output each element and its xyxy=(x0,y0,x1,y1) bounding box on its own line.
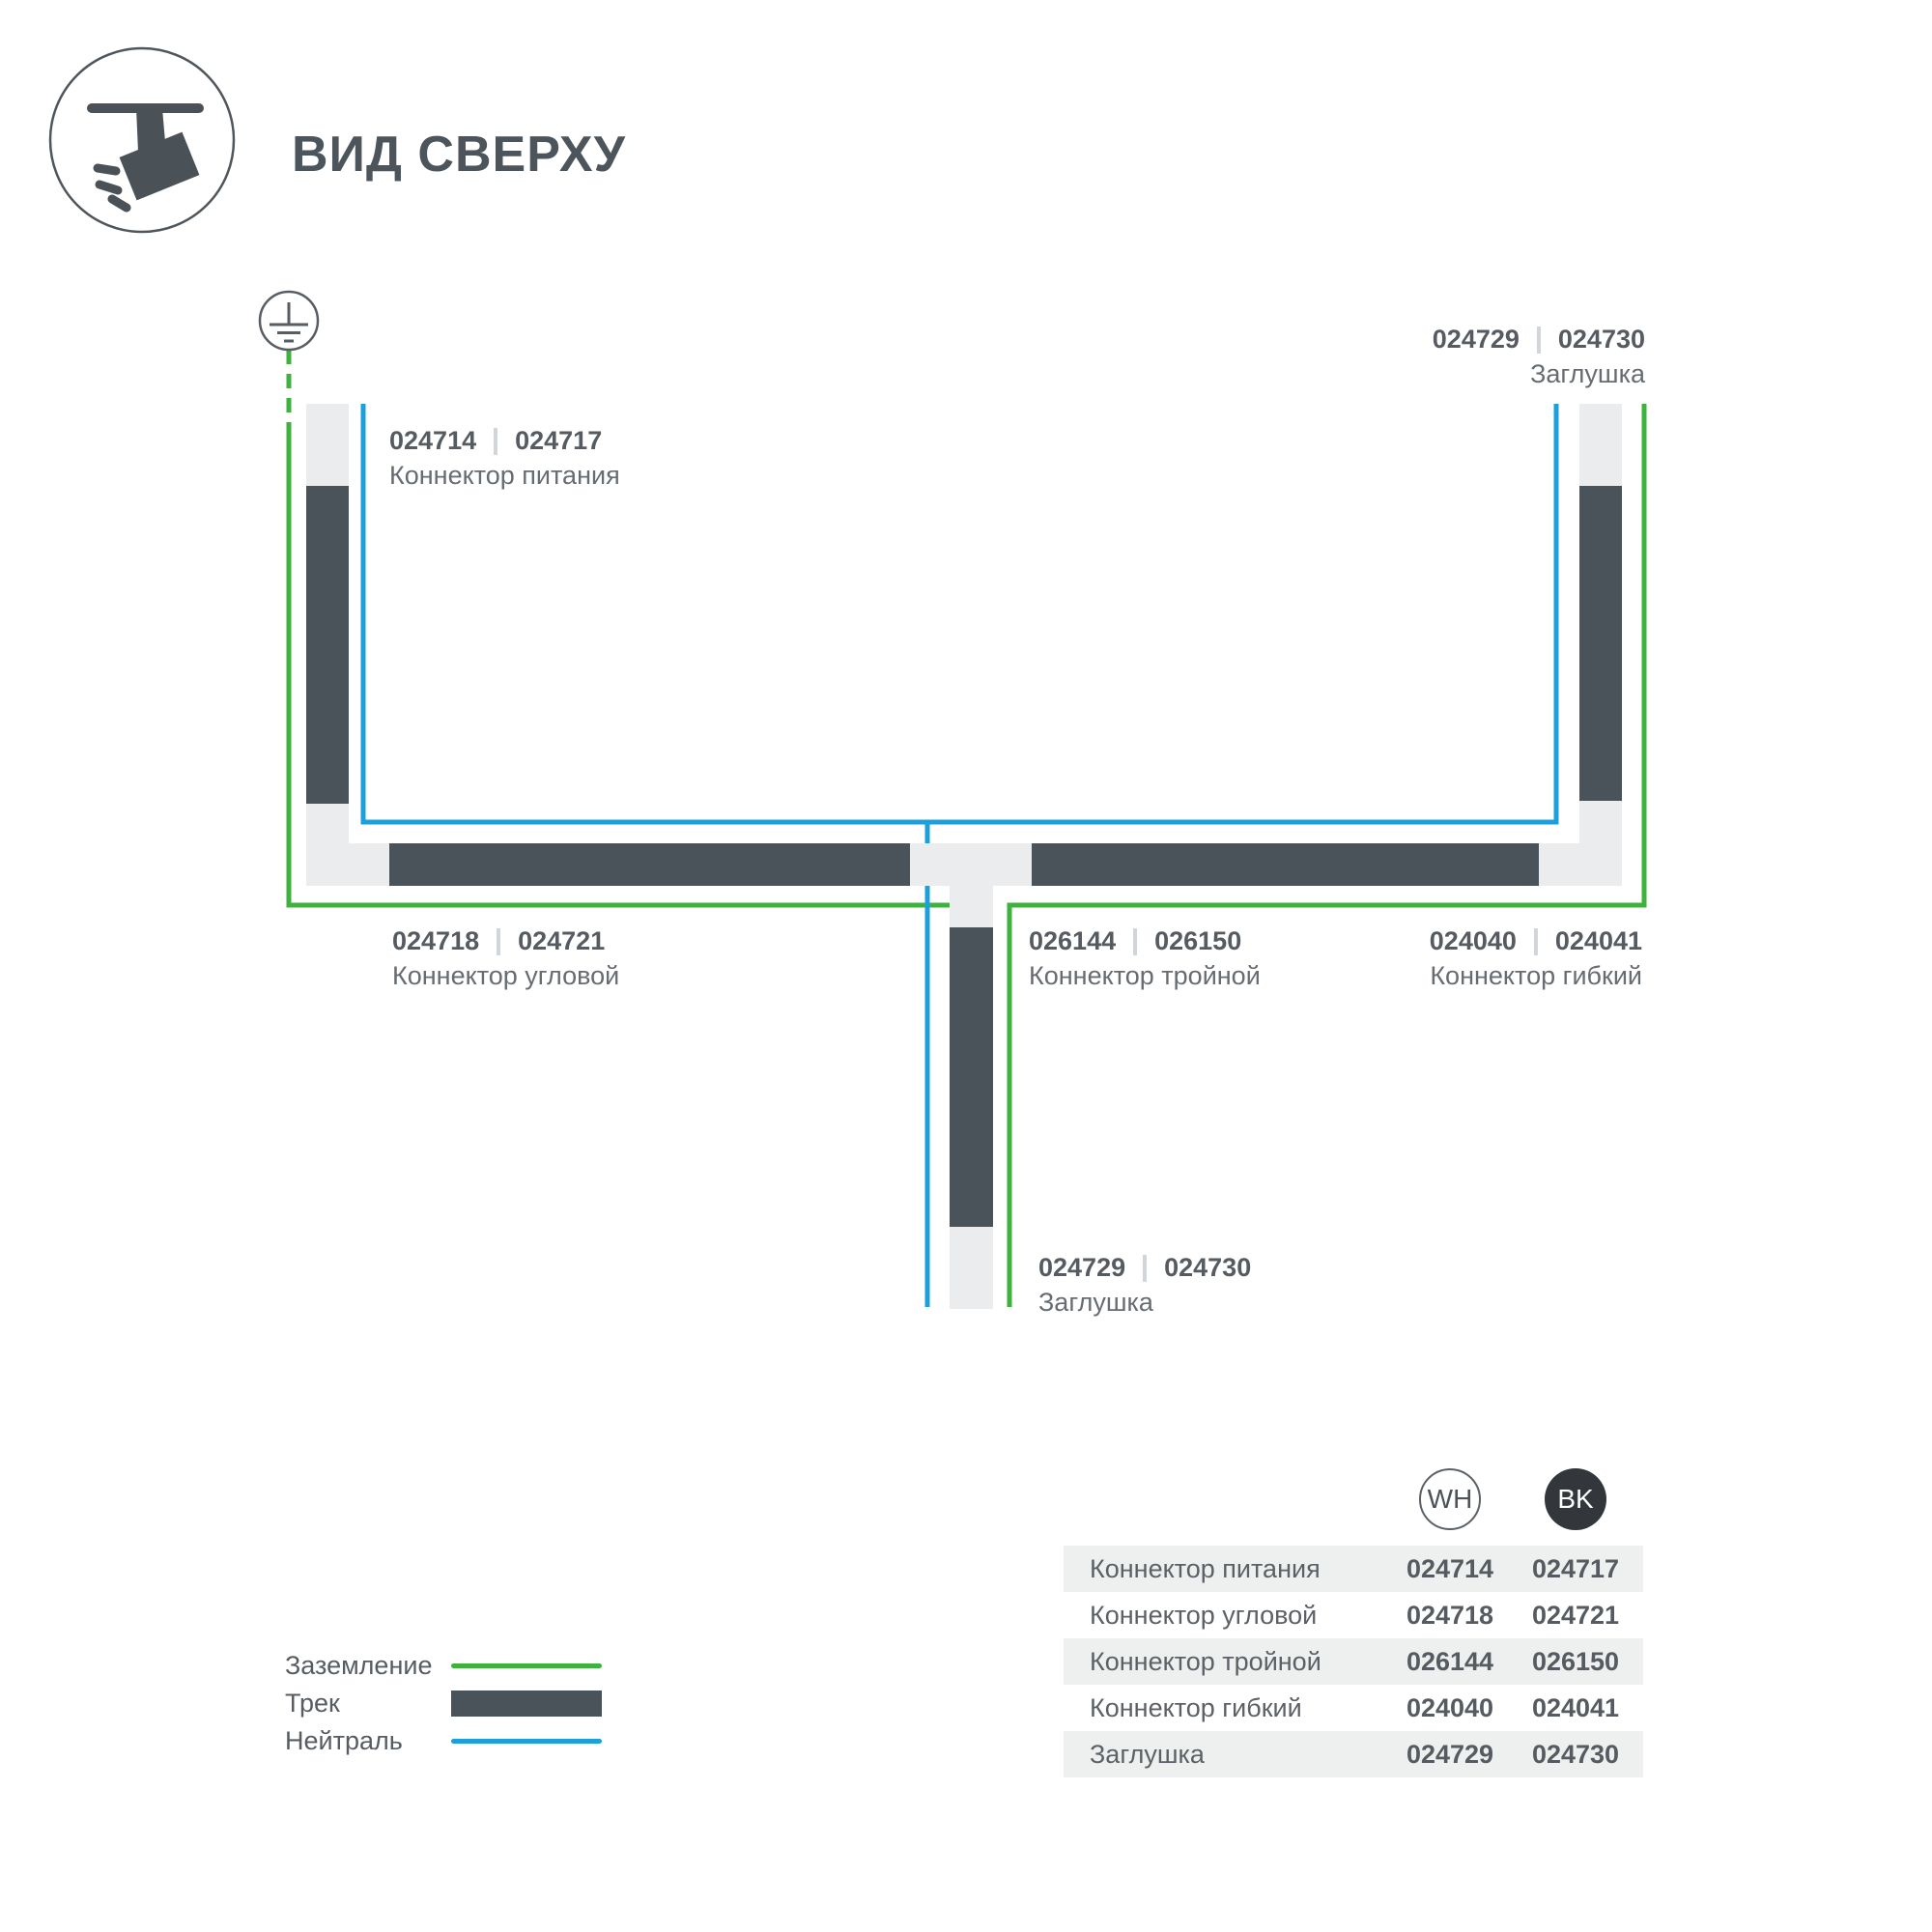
legend-label: Нейтраль xyxy=(285,1726,451,1756)
parts-table: Коннектор питания 024714 024717 Коннекто… xyxy=(1064,1546,1643,1777)
table-row: Заглушка 024729 024730 xyxy=(1064,1731,1643,1777)
row-bk-code: 024730 xyxy=(1513,1740,1638,1770)
label-corner-codes: 024718 024721 xyxy=(392,925,619,957)
code-bk: 024730 xyxy=(1164,1253,1251,1283)
legend-item-neutral: Нейтраль xyxy=(285,1722,602,1760)
table-row: Коннектор гибкий 024040 024041 xyxy=(1064,1685,1643,1731)
row-name: Коннектор питания xyxy=(1090,1554,1387,1584)
row-wh-code: 024718 xyxy=(1387,1601,1513,1631)
label-flexible-name: Коннектор гибкий xyxy=(1430,960,1642,992)
label-triple-codes: 026144 026150 xyxy=(1029,925,1261,957)
row-name: Коннектор угловой xyxy=(1090,1601,1387,1631)
label-corner-name: Коннектор угловой xyxy=(392,960,619,992)
code-divider xyxy=(497,928,500,955)
row-bk-code: 024717 xyxy=(1513,1554,1638,1584)
code-divider xyxy=(1143,1255,1147,1282)
row-wh-code: 026144 xyxy=(1387,1647,1513,1677)
row-bk-code: 026150 xyxy=(1513,1647,1638,1677)
code-wh: 024040 xyxy=(1430,926,1517,956)
code-wh: 024718 xyxy=(392,926,479,956)
label-corner-connector: 024718 024721 Коннектор угловой xyxy=(392,925,619,992)
label-endcap-top-codes: 024729 024730 xyxy=(1433,324,1645,355)
code-bk: 026150 xyxy=(1154,926,1241,956)
code-wh: 024714 xyxy=(389,426,476,456)
label-endcap-top: 024729 024730 Заглушка xyxy=(1433,324,1645,390)
column-badge-wh: WH xyxy=(1419,1468,1481,1530)
label-power-name: Коннектор питания xyxy=(389,460,620,492)
legend-item-track: Трек xyxy=(285,1685,602,1722)
label-flexible-codes: 024040 024041 xyxy=(1430,925,1642,957)
row-wh-code: 024714 xyxy=(1387,1554,1513,1584)
table-row: Коннектор тройной 026144 026150 xyxy=(1064,1638,1643,1685)
code-bk: 024717 xyxy=(515,426,602,456)
row-name: Коннектор тройной xyxy=(1090,1647,1387,1677)
code-wh: 026144 xyxy=(1029,926,1116,956)
row-wh-code: 024040 xyxy=(1387,1693,1513,1723)
code-bk: 024730 xyxy=(1558,325,1645,355)
label-triple-name: Коннектор тройной xyxy=(1029,960,1261,992)
label-endcap-top-name: Заглушка xyxy=(1433,358,1645,390)
track-bar-swatch xyxy=(451,1690,602,1717)
row-name: Коннектор гибкий xyxy=(1090,1693,1387,1723)
row-wh-code: 024729 xyxy=(1387,1740,1513,1770)
earth-ground-icon xyxy=(260,292,318,350)
row-name: Заглушка xyxy=(1090,1740,1387,1770)
code-divider xyxy=(1537,327,1541,354)
code-divider xyxy=(1534,928,1538,955)
ground-line-swatch xyxy=(451,1663,602,1668)
label-triple-connector: 026144 026150 Коннектор тройной xyxy=(1029,925,1261,992)
code-bk: 024041 xyxy=(1555,926,1642,956)
legend: Заземление Трек Нейтраль xyxy=(285,1647,602,1760)
label-endcap-bottom-codes: 024729 024730 xyxy=(1038,1252,1251,1284)
code-bk: 024721 xyxy=(518,926,605,956)
label-endcap-bottom-name: Заглушка xyxy=(1038,1287,1251,1319)
table-row: Коннектор питания 024714 024717 xyxy=(1064,1546,1643,1592)
neutral-line-swatch xyxy=(451,1739,602,1744)
column-badge-bk: BK xyxy=(1545,1468,1606,1530)
code-wh: 024729 xyxy=(1433,325,1520,355)
label-power-connector: 024714 024717 Коннектор питания xyxy=(389,425,620,492)
page: { "header": { "title": "ВИД СВЕРХУ" }, "… xyxy=(0,0,1932,1932)
code-wh: 024729 xyxy=(1038,1253,1125,1283)
code-divider xyxy=(494,428,497,455)
legend-label: Трек xyxy=(285,1689,451,1719)
legend-label: Заземление xyxy=(285,1651,451,1681)
row-bk-code: 024041 xyxy=(1513,1693,1638,1723)
code-divider xyxy=(1133,928,1137,955)
label-power-codes: 024714 024717 xyxy=(389,425,620,457)
label-endcap-bottom: 024729 024730 Заглушка xyxy=(1038,1252,1251,1319)
row-bk-code: 024721 xyxy=(1513,1601,1638,1631)
legend-item-ground: Заземление xyxy=(285,1647,602,1685)
label-flexible-connector: 024040 024041 Коннектор гибкий xyxy=(1430,925,1642,992)
table-row: Коннектор угловой 024718 024721 xyxy=(1064,1592,1643,1638)
